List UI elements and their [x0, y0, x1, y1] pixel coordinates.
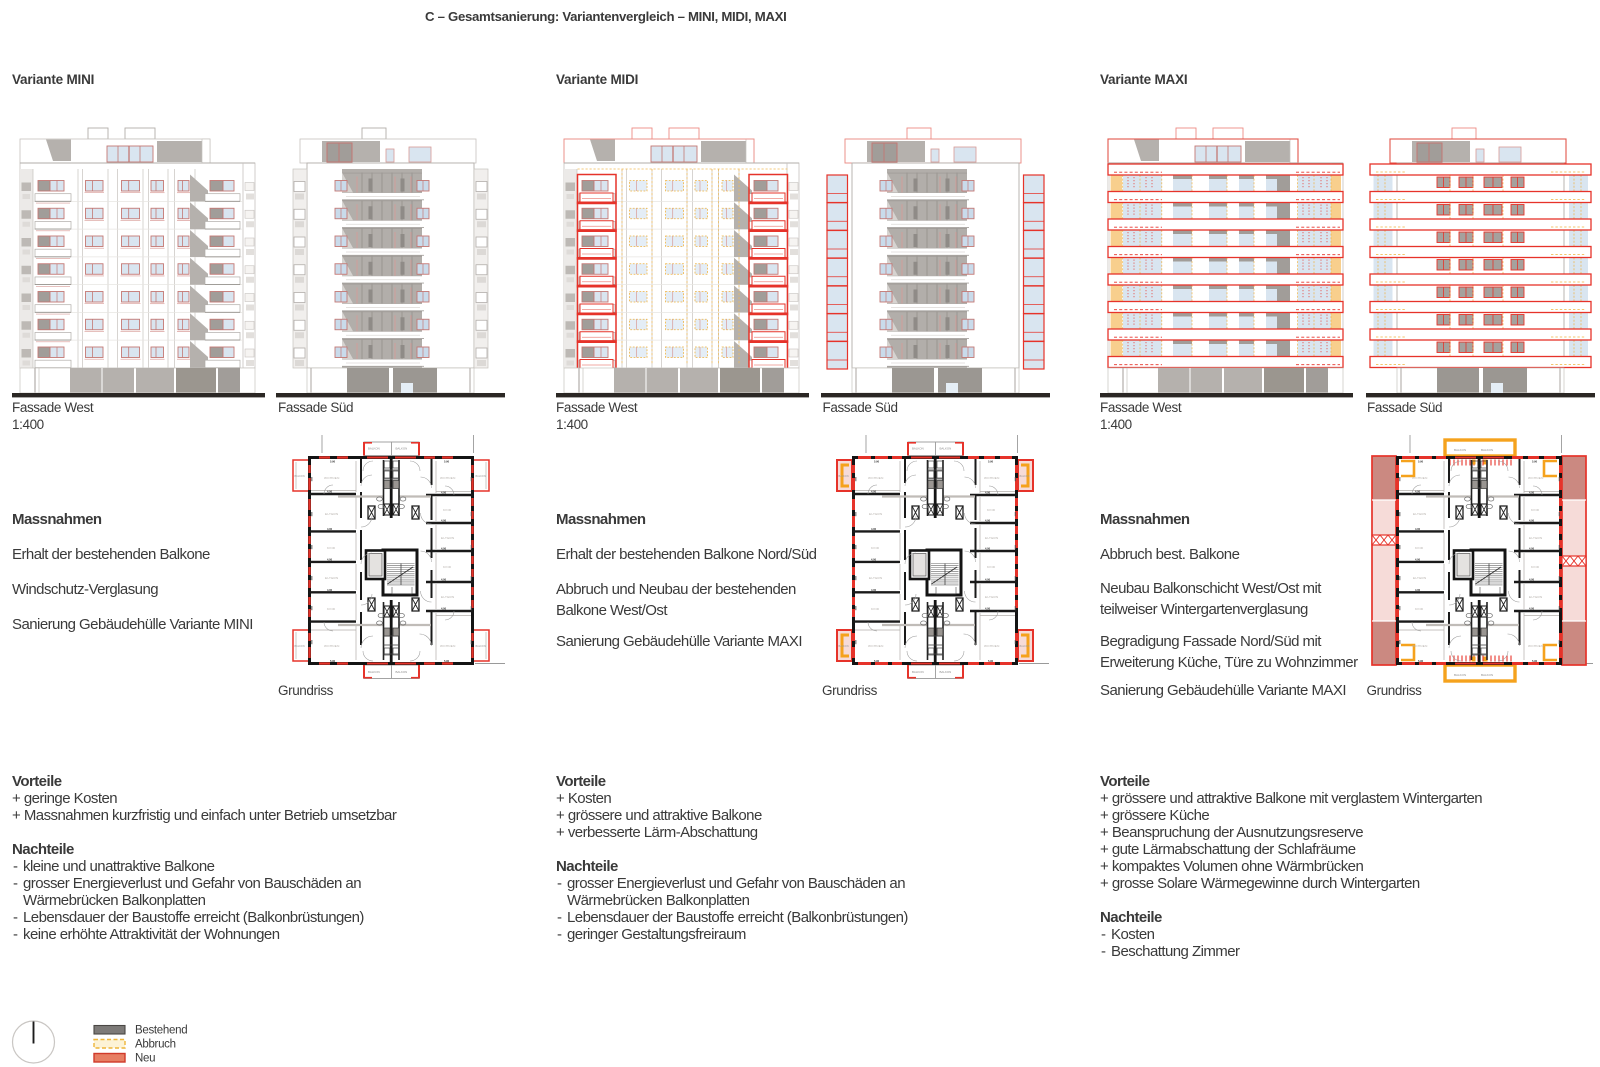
svg-text:Beschattung Zimmer: Beschattung Zimmer	[1111, 943, 1240, 960]
svg-text:Bestehend: Bestehend	[135, 1025, 187, 1037]
svg-text:4.00: 4.00	[871, 527, 877, 531]
svg-text:+ Kosten: + Kosten	[556, 790, 611, 807]
svg-text:BALKON: BALKON	[1481, 448, 1493, 452]
svg-text:Windschutz-Verglasung: Windschutz-Verglasung	[12, 581, 158, 598]
svg-text:Fassade Süd: Fassade Süd	[1367, 400, 1442, 415]
svg-text:4.00: 4.00	[1529, 519, 1535, 523]
svg-text:KIND: KIND	[1531, 565, 1540, 569]
svg-text:BALKON: BALKON	[912, 670, 924, 674]
svg-text:Fassade Süd: Fassade Süd	[278, 400, 353, 415]
svg-text:1:400: 1:400	[1100, 417, 1132, 432]
svg-text:KIND: KIND	[871, 607, 880, 611]
svg-text:ELTERN: ELTERN	[869, 576, 882, 580]
svg-text:BALKON: BALKON	[476, 475, 486, 478]
svg-text:5.90: 5.90	[1418, 659, 1424, 663]
svg-text:ELTERN: ELTERN	[985, 595, 998, 599]
svg-text:4.00: 4.00	[441, 607, 447, 611]
svg-text:BALKON: BALKON	[476, 645, 486, 648]
svg-text:Wärmebrücken Balkonplatten: Wärmebrücken Balkonplatten	[567, 892, 750, 909]
svg-text:4.00: 4.00	[1415, 558, 1421, 562]
svg-text:Erweiterung Küche, Türe zu Woh: Erweiterung Küche, Türe zu Wohnzimmer	[1100, 654, 1358, 671]
svg-text:Fassade West: Fassade West	[1100, 400, 1182, 415]
svg-text:4.00: 4.00	[985, 547, 991, 551]
svg-text:Lebensdauer der Baustoffe erre: Lebensdauer der Baustoffe erreicht (Balk…	[567, 909, 908, 926]
svg-text:BALKON: BALKON	[295, 475, 305, 478]
svg-text:4.00: 4.00	[985, 519, 991, 523]
svg-text:+ Beanspruchung der Ausnutzung: + Beanspruchung der Ausnutzungsreserve	[1100, 824, 1363, 841]
svg-text:teilweiser Wintergartenverglas: teilweiser Wintergartenverglasung	[1100, 601, 1308, 618]
svg-text:BALKON: BALKON	[940, 447, 952, 451]
svg-text:5.90: 5.90	[1532, 460, 1538, 464]
svg-text:4.00: 4.00	[871, 490, 877, 494]
svg-text:+ verbesserte Lärm-Abschattung: + verbesserte Lärm-Abschattung	[556, 824, 758, 841]
svg-text:BALKON: BALKON	[1454, 673, 1466, 677]
svg-text:geringer Gestaltungsfreiraum: geringer Gestaltungsfreiraum	[567, 926, 746, 943]
svg-text:BALKON: BALKON	[396, 670, 408, 674]
svg-text:4.00: 4.00	[1529, 607, 1535, 611]
svg-text:Erhalt der bestehenden Balkone: Erhalt der bestehenden Balkone Nord/Süd	[556, 546, 817, 563]
svg-text:4.00: 4.00	[327, 490, 333, 494]
svg-text:KIND: KIND	[443, 565, 452, 569]
svg-text:KIND: KIND	[327, 607, 336, 611]
svg-text:BALKON: BALKON	[912, 447, 924, 451]
svg-text:WOHNEN: WOHNEN	[984, 644, 1000, 648]
svg-text:4.00: 4.00	[441, 491, 447, 495]
svg-text:-: -	[13, 858, 18, 875]
svg-text:4.00: 4.00	[327, 558, 333, 562]
svg-text:5.90: 5.90	[1418, 460, 1424, 464]
svg-text:C – Gesamtsanierung: Varianten: C – Gesamtsanierung: Variantenvergleich …	[425, 9, 786, 24]
svg-text:4.00: 4.00	[1415, 527, 1421, 531]
svg-text:4.00: 4.00	[985, 578, 991, 582]
svg-text:keine erhöhte Attraktivität de: keine erhöhte Attraktivität der Wohnunge…	[23, 926, 280, 943]
svg-text:BALKON: BALKON	[1481, 673, 1493, 677]
svg-text:Grundriss: Grundriss	[1367, 683, 1423, 698]
svg-text:4.00: 4.00	[1415, 490, 1421, 494]
svg-text:-: -	[557, 926, 562, 943]
svg-text:Variante MIDI: Variante MIDI	[556, 72, 638, 87]
svg-text:Fassade Süd: Fassade Süd	[823, 400, 898, 415]
svg-text:Variante MINI: Variante MINI	[12, 72, 94, 87]
svg-text:Grundriss: Grundriss	[822, 683, 878, 698]
svg-text:4.00: 4.00	[327, 527, 333, 531]
svg-text:Lebensdauer der Baustoffe erre: Lebensdauer der Baustoffe erreicht (Balk…	[23, 909, 364, 926]
svg-text:4.00: 4.00	[1529, 547, 1535, 551]
svg-text:grosser Energieverlust und Gef: grosser Energieverlust und Gefahr von Ba…	[567, 875, 905, 892]
svg-text:+ grössere und attraktive Balk: + grössere und attraktive Balkone	[556, 807, 762, 824]
svg-text:WOHNEN: WOHNEN	[440, 476, 456, 480]
svg-text:ELTERN: ELTERN	[441, 595, 454, 599]
svg-text:WOHNEN: WOHNEN	[1412, 476, 1428, 480]
svg-text:BALKON: BALKON	[368, 447, 380, 451]
svg-text:5.90: 5.90	[330, 460, 336, 464]
svg-text:KIND: KIND	[1415, 607, 1424, 611]
svg-text:BALKON: BALKON	[1020, 475, 1030, 478]
svg-text:Neubau Balkonschicht West/Ost: Neubau Balkonschicht West/Ost mit	[1100, 580, 1322, 597]
svg-text:KIND: KIND	[1415, 546, 1424, 550]
svg-text:Wärmebrücken Balkonplatten: Wärmebrücken Balkonplatten	[23, 892, 206, 909]
svg-text:-: -	[13, 909, 18, 926]
svg-text:BALKON: BALKON	[396, 447, 408, 451]
svg-text:KIND: KIND	[327, 546, 336, 550]
svg-text:+ kompaktes Volumen ohne Wärmb: + kompaktes Volumen ohne Wärmbrücken	[1100, 858, 1363, 875]
svg-text:4.00: 4.00	[441, 519, 447, 523]
svg-text:5.90: 5.90	[444, 659, 450, 663]
svg-text:BALKON: BALKON	[940, 670, 952, 674]
svg-text:BALKON: BALKON	[368, 670, 380, 674]
svg-text:5.90: 5.90	[874, 460, 880, 464]
svg-text:Nachteile: Nachteile	[12, 841, 74, 858]
svg-text:Sanierung Gebäudehülle Variant: Sanierung Gebäudehülle Variante MAXI	[1100, 682, 1346, 699]
svg-text:kleine und unattraktive Balkon: kleine und unattraktive Balkone	[23, 858, 215, 875]
svg-text:5.90: 5.90	[444, 460, 450, 464]
svg-text:4.00: 4.00	[441, 578, 447, 582]
svg-text:4.00: 4.00	[1415, 588, 1421, 592]
svg-text:ELTERN: ELTERN	[985, 536, 998, 540]
svg-text:4.00: 4.00	[985, 607, 991, 611]
svg-text:Abbruch best. Balkone: Abbruch best. Balkone	[1100, 546, 1240, 563]
svg-text:KIND: KIND	[1531, 508, 1540, 512]
svg-text:WOHNEN: WOHNEN	[984, 476, 1000, 480]
svg-text:KIND: KIND	[871, 546, 880, 550]
svg-text:-: -	[557, 909, 562, 926]
svg-text:-: -	[13, 875, 18, 892]
svg-text:5.90: 5.90	[874, 659, 880, 663]
svg-text:Neu: Neu	[135, 1053, 155, 1065]
svg-text:5.90: 5.90	[988, 460, 994, 464]
svg-text:WOHNEN: WOHNEN	[1528, 644, 1544, 648]
svg-text:Balkone West/Ost: Balkone West/Ost	[556, 602, 668, 619]
svg-text:Nachteile: Nachteile	[556, 858, 618, 875]
svg-text:4.00: 4.00	[871, 588, 877, 592]
svg-text:4.00: 4.00	[327, 588, 333, 592]
svg-text:4.00: 4.00	[985, 491, 991, 495]
svg-text:-: -	[557, 875, 562, 892]
svg-text:Begradigung Fassade Nord/Süd m: Begradigung Fassade Nord/Süd mit	[1100, 633, 1322, 650]
svg-text:+ grössere Küche: + grössere Küche	[1100, 807, 1209, 824]
svg-text:Fassade West: Fassade West	[556, 400, 638, 415]
svg-text:+ grosse Solare Wärmegewinne d: + grosse Solare Wärmegewinne durch Winte…	[1100, 875, 1420, 892]
svg-text:Abbruch und Neubau der bestehe: Abbruch und Neubau der bestehenden	[556, 581, 796, 598]
svg-text:Kosten: Kosten	[1111, 926, 1155, 943]
svg-text:-: -	[1101, 926, 1106, 943]
svg-text:Erhalt der bestehenden Balkone: Erhalt der bestehenden Balkone	[12, 546, 210, 563]
svg-text:Massnahmen: Massnahmen	[12, 511, 102, 528]
svg-text:WOHNEN: WOHNEN	[440, 644, 456, 648]
svg-text:+ Massnahmen kurzfristig und e: + Massnahmen kurzfristig und einfach unt…	[12, 807, 397, 824]
svg-text:ELTERN: ELTERN	[1413, 512, 1426, 516]
svg-text:ELTERN: ELTERN	[1529, 595, 1542, 599]
svg-text:BALKON: BALKON	[839, 475, 849, 478]
svg-text:+ grössere und attraktive Balk: + grössere und attraktive Balkone mit ve…	[1100, 790, 1482, 807]
svg-text:Fassade West: Fassade West	[12, 400, 94, 415]
svg-text:Sanierung Gebäudehülle Variant: Sanierung Gebäudehülle Variante MAXI	[556, 633, 802, 650]
svg-text:Massnahmen: Massnahmen	[1100, 511, 1190, 528]
svg-text:ELTERN: ELTERN	[441, 536, 454, 540]
svg-text:5.90: 5.90	[330, 659, 336, 663]
svg-text:WOHNEN: WOHNEN	[1412, 644, 1428, 648]
svg-text:1:400: 1:400	[556, 417, 588, 432]
svg-text:BALKON: BALKON	[1020, 645, 1030, 648]
svg-text:grosser Energieverlust und Gef: grosser Energieverlust und Gefahr von Ba…	[23, 875, 361, 892]
svg-text:4.00: 4.00	[441, 547, 447, 551]
svg-text:Sanierung Gebäudehülle Variant: Sanierung Gebäudehülle Variante MINI	[12, 616, 253, 633]
svg-text:BALKON: BALKON	[295, 645, 305, 648]
svg-text:+ gute Lärmabschattung der Sch: + gute Lärmabschattung der Schlafräume	[1100, 841, 1356, 858]
svg-text:5.90: 5.90	[988, 659, 994, 663]
svg-text:WOHNEN: WOHNEN	[1528, 476, 1544, 480]
svg-text:KIND: KIND	[987, 565, 996, 569]
svg-text:KIND: KIND	[987, 508, 996, 512]
svg-text:ELTERN: ELTERN	[325, 512, 338, 516]
svg-text:WOHNEN: WOHNEN	[868, 476, 884, 480]
svg-text:+ geringe Kosten: + geringe Kosten	[12, 790, 117, 807]
svg-text:4.00: 4.00	[1529, 491, 1535, 495]
svg-text:-: -	[13, 926, 18, 943]
svg-text:Nachteile: Nachteile	[1100, 909, 1162, 926]
svg-text:ELTERN: ELTERN	[1413, 576, 1426, 580]
svg-text:Variante MAXI: Variante MAXI	[1100, 72, 1187, 87]
svg-text:Grundriss: Grundriss	[278, 683, 334, 698]
svg-text:BALKON: BALKON	[839, 645, 849, 648]
svg-text:WOHNEN: WOHNEN	[868, 644, 884, 648]
svg-text:ELTERN: ELTERN	[325, 576, 338, 580]
svg-text:BALKON: BALKON	[1454, 448, 1466, 452]
svg-text:Vorteile: Vorteile	[1100, 773, 1150, 790]
svg-text:WOHNEN: WOHNEN	[324, 644, 340, 648]
svg-text:4.00: 4.00	[871, 558, 877, 562]
svg-text:4.00: 4.00	[1529, 578, 1535, 582]
svg-text:WOHNEN: WOHNEN	[324, 476, 340, 480]
svg-text:Massnahmen: Massnahmen	[556, 511, 646, 528]
svg-text:-: -	[1101, 943, 1106, 960]
svg-text:ELTERN: ELTERN	[1529, 536, 1542, 540]
svg-text:5.90: 5.90	[1532, 659, 1538, 663]
svg-text:Vorteile: Vorteile	[12, 773, 62, 790]
svg-text:Abbruch: Abbruch	[135, 1039, 176, 1051]
svg-text:1:400: 1:400	[12, 417, 44, 432]
svg-text:Vorteile: Vorteile	[556, 773, 606, 790]
svg-text:KIND: KIND	[443, 508, 452, 512]
svg-text:ELTERN: ELTERN	[869, 512, 882, 516]
